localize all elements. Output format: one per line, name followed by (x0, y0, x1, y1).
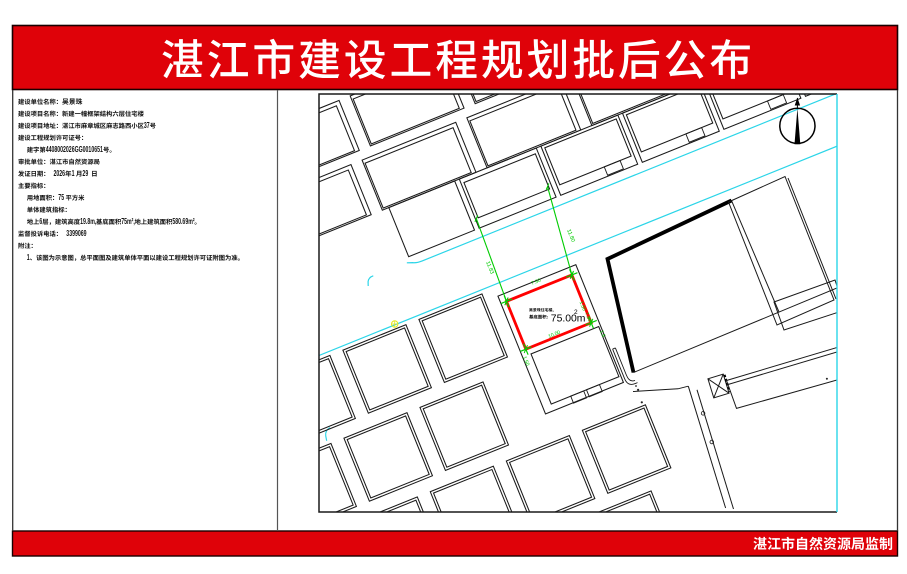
svg-text:75.00m: 75.00m (551, 313, 586, 324)
svg-text:75m²,: 75m², (121, 218, 135, 226)
svg-text:580.69m²: 580.69m² (172, 218, 195, 226)
svg-text:2: 2 (574, 309, 578, 316)
svg-text:4408002026GG0010651: 4408002026GG0010651 (46, 146, 103, 154)
svg-text:2026: 2026 (54, 170, 66, 178)
svg-text:29: 29 (82, 170, 88, 178)
svg-text:75: 75 (58, 194, 64, 202)
svg-text:1: 1 (72, 170, 75, 178)
svg-text:19.8m,: 19.8m, (80, 218, 96, 226)
svg-text:1: 1 (27, 254, 30, 262)
svg-text:37: 37 (144, 122, 150, 130)
svg-text:3399069: 3399069 (66, 230, 86, 238)
svg-text:6: 6 (39, 218, 42, 226)
